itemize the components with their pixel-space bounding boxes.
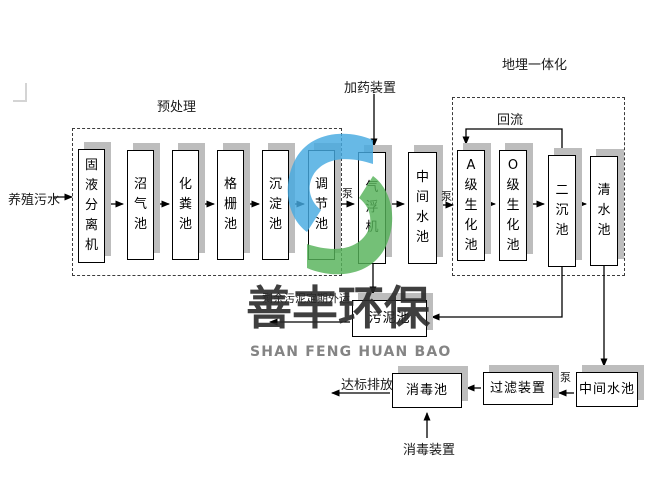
pump-label-1: 泵 [342, 185, 353, 201]
box-secondary-sedimentation-tank: 二沉池 [548, 155, 576, 267]
box-label: 中间水池 [415, 168, 430, 248]
box-label: 格栅池 [223, 175, 238, 235]
pretreatment-label: 预处理 [157, 96, 196, 115]
pump-label-2: 泵 [441, 188, 452, 204]
box-regulating-tank: 调节池 [308, 150, 335, 260]
box-clear-water-tank: 清水池 [590, 156, 618, 266]
buried-integration-label: 地埋一体化 [502, 54, 567, 73]
box-label: 清水池 [597, 181, 612, 241]
box-septic-tank: 化粪池 [172, 150, 199, 260]
discharge-label: 达标排放 [341, 374, 393, 393]
box-grille-tank: 格栅池 [217, 150, 244, 260]
influent-label: 养殖污水 [8, 189, 60, 208]
dosing-device-label: 加药装置 [344, 77, 396, 96]
box-label: 过滤装置 [490, 382, 546, 395]
box-label: 化粪池 [178, 175, 193, 235]
disinfection-device-label: 消毒装置 [403, 439, 455, 458]
box-label: 消毒池 [406, 384, 448, 397]
box-air-flotation-machine: 气浮机 [358, 152, 386, 264]
sludge-disposal-label: 剩余污泥定期外运 [262, 290, 350, 306]
box-label: 沉淀池 [268, 175, 283, 235]
box-filter-device: 过滤装置 [483, 372, 553, 405]
box-solid-liquid-separator: 固液分离机 [78, 149, 105, 263]
pump-label-3: 泵 [560, 369, 571, 385]
box-sludge-tank: 污泥池 [352, 300, 427, 337]
box-intermediate-tank-1: 中间水池 [408, 152, 437, 264]
process-flow-diagram: 固液分离机 沼气池 化粪池 格栅池 沉淀池 调节池 气浮机 中间水池 A级生化池… [0, 0, 650, 500]
box-label: 二沉池 [555, 181, 570, 241]
box-label: 污泥池 [368, 312, 410, 325]
box-disinfection-tank: 消毒池 [392, 373, 462, 408]
box-intermediate-tank-2: 中间水池 [576, 372, 638, 407]
box-label: 调节池 [314, 175, 329, 235]
reflux-label: 回流 [497, 109, 523, 128]
box-label: 固液分离机 [84, 156, 99, 256]
box-sedimentation-tank: 沉淀池 [262, 150, 289, 260]
box-label: A级生化池 [464, 156, 479, 256]
box-o-biochemical-tank: O级生化池 [499, 150, 527, 261]
box-a-biochemical-tank: A级生化池 [457, 150, 485, 261]
box-label: O级生化池 [506, 156, 521, 256]
box-label: 气浮机 [365, 178, 380, 238]
box-label: 沼气池 [133, 175, 148, 235]
box-biogas-tank: 沼气池 [127, 150, 154, 260]
box-label: 中间水池 [579, 383, 635, 396]
